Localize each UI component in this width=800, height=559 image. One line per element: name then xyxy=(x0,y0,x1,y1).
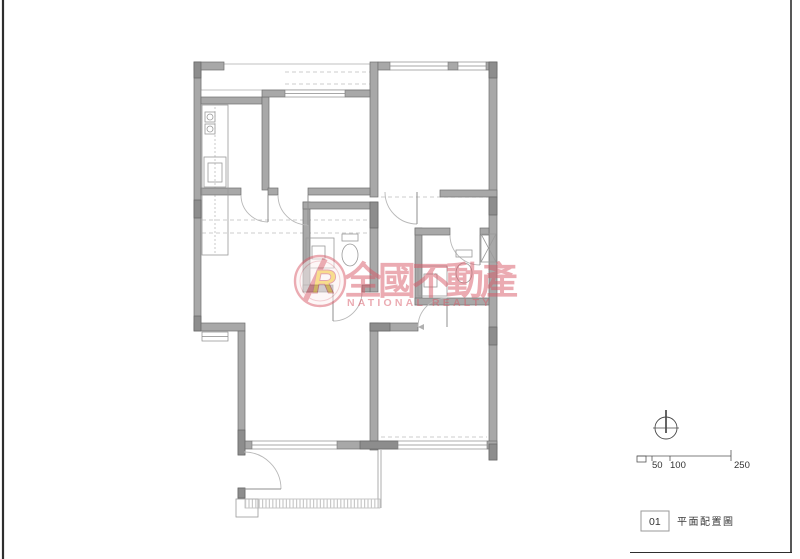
drawing-number: 01 xyxy=(649,516,661,528)
scale-label-50: 50 xyxy=(652,460,663,471)
floor-plan: R 全國不動產 NATIONAL REALTY 50 100 250 01 平面… xyxy=(0,0,800,559)
drawing-sheet: R 全國不動產 NATIONAL REALTY 50 100 250 01 平面… xyxy=(0,0,800,559)
window xyxy=(285,90,345,97)
watermark: R 全國不動產 NATIONAL REALTY xyxy=(295,256,518,309)
window xyxy=(390,62,448,70)
window xyxy=(398,441,487,449)
watermark-logo: R xyxy=(295,256,345,306)
watermark-logo-letter: R xyxy=(312,263,336,300)
window xyxy=(458,62,486,70)
window xyxy=(202,332,228,341)
watermark-company-name-en: NATIONAL REALTY xyxy=(347,297,492,309)
scale-label-100: 100 xyxy=(670,460,686,471)
scale-label-250: 250 xyxy=(734,460,750,471)
drawing-title: 平面配置圖 xyxy=(677,516,735,528)
window xyxy=(252,441,337,449)
